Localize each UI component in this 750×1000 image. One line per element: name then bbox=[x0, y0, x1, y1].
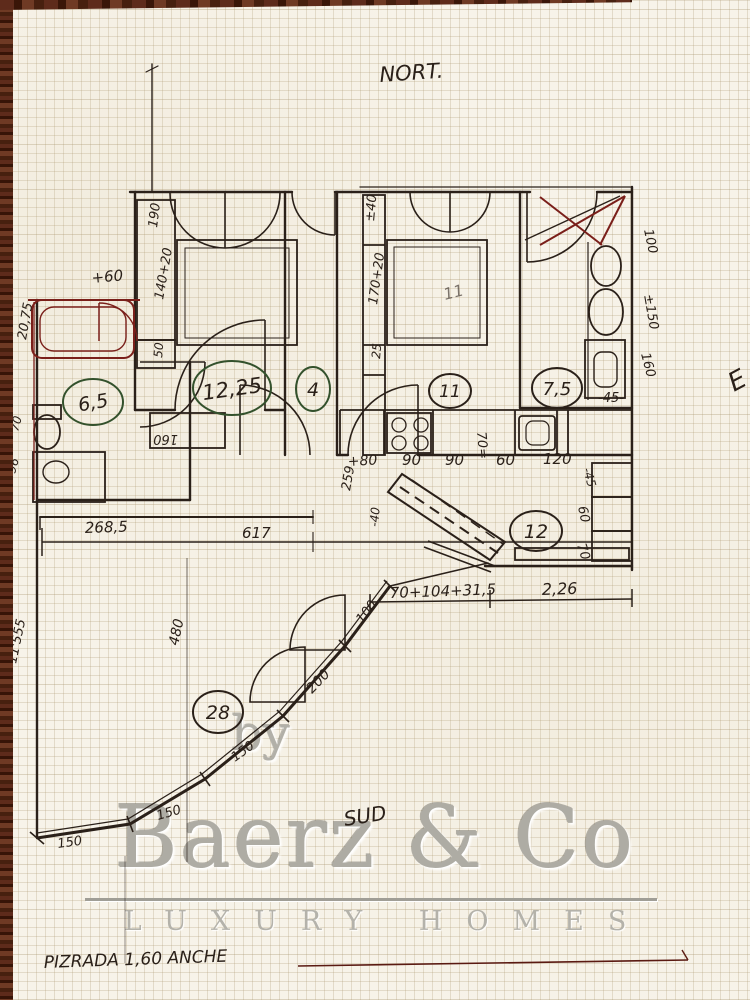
sink-right-2 bbox=[589, 289, 623, 335]
label-140-20: 140+20 bbox=[152, 247, 176, 301]
label-150c: 150 bbox=[229, 739, 258, 766]
bed-left bbox=[177, 240, 297, 345]
area-bedroom-left: 12,25 bbox=[201, 373, 264, 405]
label-r12-45: -45 bbox=[580, 466, 599, 489]
label-right-100: 100 bbox=[640, 228, 660, 255]
compass-south: SUD bbox=[342, 801, 388, 831]
label-right-160: 160 bbox=[637, 351, 658, 379]
area-bathroom-right: 7,5 bbox=[543, 379, 572, 400]
label-k120: 120 bbox=[543, 450, 572, 468]
label-r12-60: 60 bbox=[574, 505, 592, 524]
label-right-150: ±150 bbox=[640, 293, 661, 331]
dimension-lines bbox=[40, 510, 688, 966]
label-k70: 70= bbox=[473, 431, 490, 460]
label-bath-45: -45- bbox=[598, 391, 624, 406]
room-area-bathroom-right: 7,5 bbox=[532, 368, 582, 408]
floor-plan-drawing: 6,5 12,25 4 11 7,5 12 bbox=[0, 0, 750, 1000]
label-259: 259 bbox=[339, 465, 358, 492]
bed-right bbox=[387, 240, 487, 345]
handwritten-note: PIZRADA 1,60 ANCHE bbox=[43, 947, 227, 973]
room-area-hall: 4 bbox=[296, 367, 330, 411]
label-200: 200 bbox=[303, 666, 333, 696]
area-bedroom-right: 11 bbox=[439, 382, 461, 402]
area-hall: 4 bbox=[307, 379, 319, 401]
label-480: 480 bbox=[166, 617, 187, 647]
wood-table-edge-left bbox=[0, 0, 13, 1000]
label-25: 25 bbox=[369, 343, 384, 359]
label-pm40: ±40 bbox=[363, 194, 380, 223]
compass-north: NORT. bbox=[379, 59, 444, 87]
door-arcs bbox=[140, 192, 597, 702]
label-150a: 150 bbox=[56, 834, 83, 852]
label-226: 2,26 bbox=[541, 579, 577, 599]
area-terrace: 28 bbox=[206, 702, 230, 724]
label-k90b: 90 bbox=[445, 451, 464, 469]
label-2075: 20,75 bbox=[15, 301, 36, 340]
label-plus-60: +60 bbox=[91, 266, 124, 287]
label-k90a: 90 bbox=[402, 451, 421, 469]
sink-right-1 bbox=[591, 246, 621, 286]
room-area-bedroom-right: 11 bbox=[429, 374, 471, 408]
room-area-kitchen-dining: 12 bbox=[510, 511, 562, 551]
annotations: NORT. SUD E PIZRADA 1,60 ANCHE bbox=[43, 59, 750, 973]
compass-east-partial: E bbox=[723, 364, 750, 398]
room-area-bedroom-left: 12,25 bbox=[193, 361, 271, 415]
label-617: 617 bbox=[242, 524, 271, 542]
label-70-104: 70+104+31,5 bbox=[390, 580, 497, 602]
toilet-right bbox=[585, 340, 625, 398]
label-2685: 268,5 bbox=[85, 518, 129, 537]
label-r12-70: 70 bbox=[573, 542, 592, 562]
room-area-terrace: 28 bbox=[193, 691, 243, 733]
label-190: 190 bbox=[146, 202, 164, 228]
area-bathroom-left: 6,5 bbox=[76, 390, 110, 417]
label-50: 50 bbox=[151, 341, 166, 358]
label-neg40: -40 bbox=[367, 506, 383, 527]
wardrobe-right bbox=[363, 195, 385, 455]
label-closet-160: 160 bbox=[153, 431, 178, 446]
red-door-arc bbox=[99, 303, 137, 341]
dimension-labels: 190 140+20 50 +60 160 11 ±40 170+20 25 1… bbox=[4, 194, 661, 852]
photographed-floorplan: by Baerz & Co LUXURY HOMES bbox=[0, 0, 750, 1000]
label-k60: 60 bbox=[496, 451, 515, 469]
room-area-bathroom-left: 6,5 bbox=[63, 379, 123, 425]
label-bed2-pencil: 11 bbox=[441, 281, 465, 304]
area-kitchen-dining: 12 bbox=[524, 521, 548, 543]
